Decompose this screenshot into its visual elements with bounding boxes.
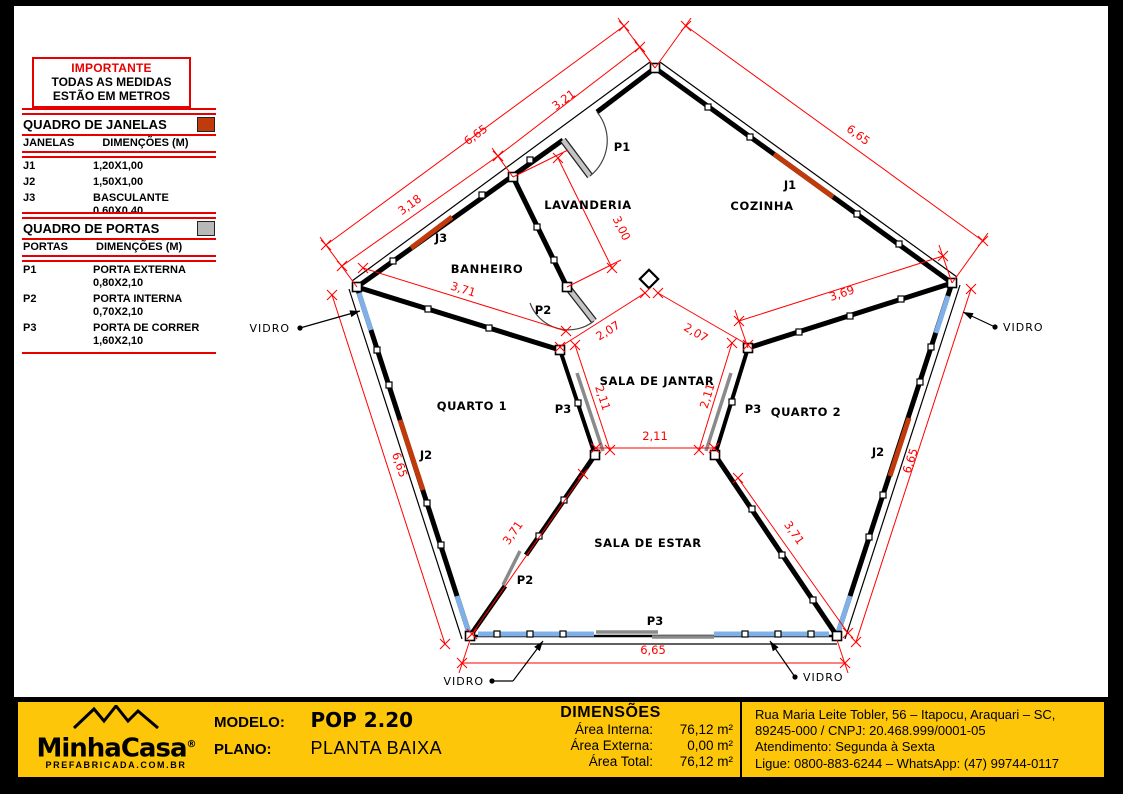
wall-post (866, 534, 872, 540)
dim-label: 3,71 (781, 518, 807, 547)
room-label: SALA DE JANTAR (600, 374, 715, 388)
dim-line (332, 295, 445, 644)
wall-post (796, 329, 802, 335)
outer-wall-face (352, 62, 650, 281)
exterior-wall (597, 68, 655, 112)
dim-line (342, 156, 498, 266)
dim-extension-line (837, 640, 848, 673)
dimensions-block: DIMENSÕES Área Interna: 76,12 m² Área Ex… (488, 704, 733, 770)
wall-post (749, 506, 755, 512)
vidro-label: VIDRO (803, 671, 844, 684)
divider (740, 702, 742, 777)
wall-post (747, 134, 753, 140)
area-label: Área Interna: (488, 722, 653, 738)
dim-extension-line (459, 640, 470, 673)
vidro-label: VIDRO (443, 675, 484, 688)
vidro-label: VIDRO (1003, 321, 1044, 334)
dim-label: 3,18 (395, 192, 424, 218)
door-label: P3 (745, 402, 761, 416)
wall-post (424, 500, 430, 506)
room-label: QUARTO 2 (771, 405, 841, 419)
door-label: P3 (647, 614, 663, 628)
wall-post (896, 241, 902, 247)
room-label: BANHEIRO (451, 262, 523, 276)
center-pillar (640, 270, 658, 288)
area-value: 76,12 m² (653, 722, 733, 738)
door-label: P2 (535, 303, 551, 317)
interior-wall (357, 287, 560, 350)
dim-label: 2,11 (642, 429, 668, 443)
wall-post (486, 325, 492, 331)
logo-subtitle: PREFABRICADA.COM.BR (36, 760, 196, 770)
dim-label: 2,07 (681, 320, 710, 345)
wall-post (854, 211, 860, 217)
wall-post (705, 104, 711, 110)
wall-post (779, 552, 785, 558)
area-value: 76,12 m² (653, 754, 733, 770)
wall-post (742, 631, 748, 637)
wall-post (386, 382, 392, 388)
dim-label: 6,65 (389, 450, 410, 479)
contact-block: Rua Maria Leite Tobler, 56 – Itapocu, Ar… (755, 707, 1059, 772)
wall-post (898, 296, 904, 302)
leader-arrowhead (349, 310, 360, 317)
dim-extension-line (634, 39, 655, 68)
wall-post (425, 306, 431, 312)
door-swing-arc (590, 112, 607, 176)
dim-line (472, 474, 583, 634)
wall-post (527, 631, 533, 637)
floor-plan: 6,653,213,186,653,003,713,692,072,072,11… (0, 0, 1123, 794)
window-label: J3 (434, 231, 447, 245)
wall-joint (833, 632, 842, 641)
roof-icon (70, 705, 162, 729)
area-value: 0,00 m² (653, 738, 733, 754)
plano-label: PLANO: (214, 741, 306, 758)
wall-post (534, 224, 540, 230)
room-label: COZINHA (730, 199, 793, 213)
window-label: J2 (419, 448, 432, 462)
wall-post (729, 399, 735, 405)
window-label: J1 (783, 178, 796, 192)
wall-post (880, 492, 886, 498)
dim-label: 2,07 (593, 318, 622, 343)
wall-post (575, 400, 581, 406)
leader-arrowhead (534, 641, 543, 651)
door-leaf (563, 140, 590, 176)
address-line: Atendimento: Segunda à Sexta (755, 739, 1059, 755)
dim-label: 3,71 (500, 518, 526, 547)
wall-post (390, 258, 396, 264)
area-label: Área Externa: (488, 738, 653, 754)
interior-wall (526, 455, 595, 555)
wall-post (917, 379, 923, 385)
dim-label: 6,65 (461, 122, 490, 148)
dim-extension-line (567, 260, 621, 287)
window-label: J2 (871, 445, 884, 459)
wall-post (810, 597, 816, 603)
drawing-page: IMPORTANTE TODAS AS MEDIDAS ESTÃO EM MET… (0, 0, 1123, 794)
dim-label: 6,65 (900, 446, 921, 475)
modelo-value: POP 2.20 (310, 708, 413, 732)
address-line: Ligue: 0800-883-6244 – WhatsApp: (47) 99… (755, 756, 1059, 772)
plano-value: PLANTA BAIXA (310, 738, 442, 758)
room-label: SALA DE ESTAR (594, 536, 701, 550)
window-segment (774, 154, 833, 197)
leader-arrowhead (963, 312, 974, 319)
address-line: Rua Maria Leite Tobler, 56 – Itapocu, Ar… (755, 707, 1059, 723)
dimension-row: Área Interna: 76,12 m² (488, 722, 733, 738)
modelo-label: MODELO: (214, 714, 306, 731)
wall-post (847, 313, 853, 319)
dim-line (738, 478, 848, 633)
door-label: P2 (517, 573, 533, 587)
wall-post (494, 631, 500, 637)
wall-post (775, 631, 781, 637)
wall-post (808, 631, 814, 637)
logo-name: MinhaCasa® (36, 734, 196, 760)
dimensions-title: DIMENSÕES (488, 704, 733, 722)
dimension-row: Área Total: 76,12 m² (488, 754, 733, 770)
wall-post (438, 542, 444, 548)
outer-wall-face (660, 62, 957, 277)
wall-post (479, 192, 485, 198)
vidro-label: VIDRO (249, 322, 290, 335)
wall-post (527, 157, 533, 163)
address-line: 89245-000 / CNPJ: 20.468.999/0001-05 (755, 723, 1059, 739)
dim-label: 3,69 (827, 283, 856, 304)
title-block: MinhaCasa® PREFABRICADA.COM.BR MODELO: P… (18, 702, 1104, 777)
company-logo: MinhaCasa® PREFABRICADA.COM.BR (36, 705, 196, 770)
door-leaf (569, 289, 594, 321)
area-label: Área Total: (488, 754, 653, 770)
wall-post (928, 344, 934, 350)
dim-label: 3,21 (549, 87, 578, 113)
wall-post (560, 631, 566, 637)
leader-arrowhead (770, 641, 779, 651)
dim-label: 6,65 (640, 643, 666, 657)
room-label: LAVANDERIA (544, 198, 632, 212)
dim-label: 3,00 (610, 214, 634, 243)
wall-post (551, 257, 557, 263)
dimension-row: Área Externa: 0,00 m² (488, 738, 733, 754)
wall-post (374, 347, 380, 353)
door-label: P1 (614, 140, 630, 154)
room-label: QUARTO 1 (437, 399, 507, 413)
model-plan-block: MODELO: POP 2.20 PLANO: PLANTA BAIXA (214, 708, 442, 759)
door-label: P3 (555, 402, 571, 416)
